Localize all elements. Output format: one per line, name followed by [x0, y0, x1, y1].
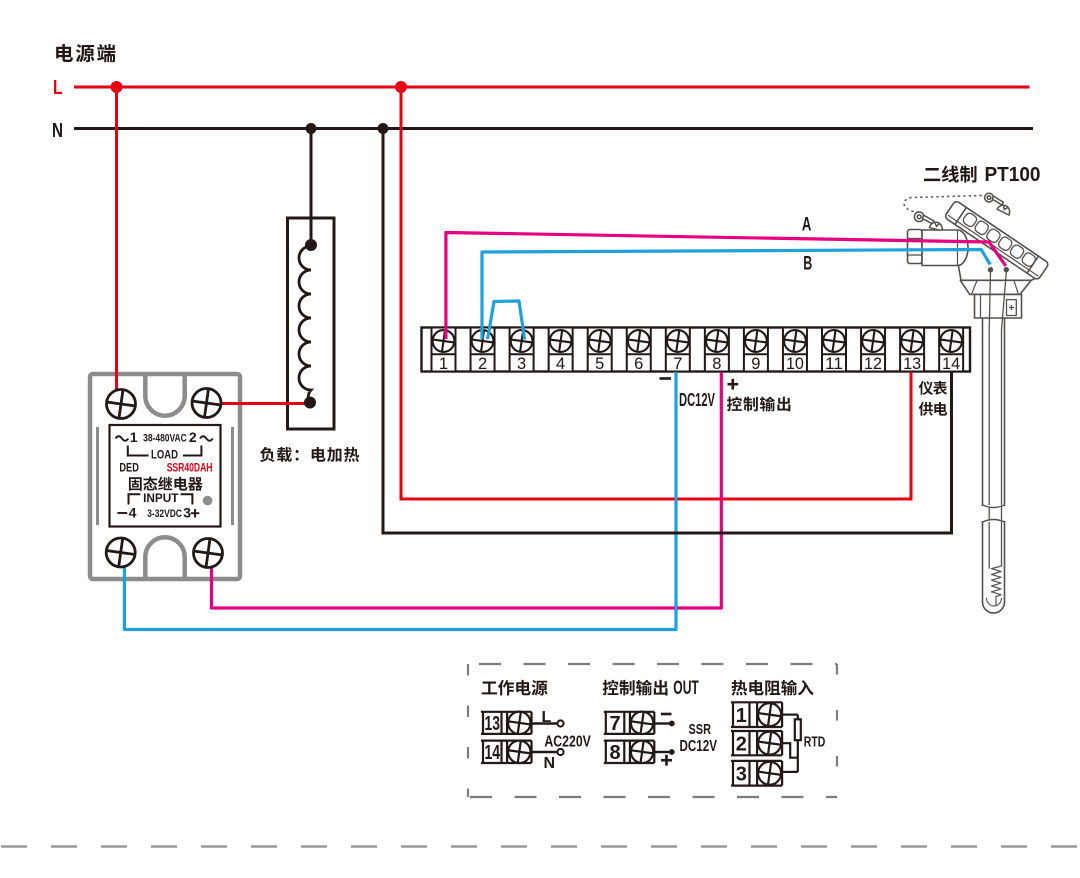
svg-text:38-480VAC: 38-480VAC — [143, 433, 187, 445]
svg-text:2: 2 — [189, 429, 197, 445]
svg-text:12: 12 — [864, 355, 882, 373]
svg-text:3: 3 — [517, 355, 526, 373]
svg-text:3: 3 — [183, 504, 191, 520]
svg-text:8: 8 — [609, 742, 620, 764]
svg-text:14: 14 — [942, 355, 960, 373]
svg-text:L: L — [542, 709, 552, 726]
svg-text:DC12V: DC12V — [680, 738, 718, 755]
svg-text:1: 1 — [439, 355, 448, 373]
svg-text:14: 14 — [485, 742, 501, 764]
svg-text:3: 3 — [736, 763, 747, 785]
svg-text:DED: DED — [119, 460, 139, 474]
svg-text:RTD: RTD — [804, 733, 826, 750]
svg-text:DC12V: DC12V — [679, 390, 715, 410]
svg-text:OUT: OUT — [673, 678, 699, 699]
svg-text:9: 9 — [751, 355, 760, 373]
svg-text:2: 2 — [478, 355, 487, 373]
svg-text:8: 8 — [712, 355, 721, 373]
svg-text:6: 6 — [634, 355, 643, 373]
svg-text:13: 13 — [903, 355, 921, 373]
svg-text:B: B — [803, 254, 812, 275]
svg-text:2: 2 — [736, 733, 747, 755]
svg-text:PT100: PT100 — [985, 164, 1041, 186]
svg-text:5: 5 — [595, 355, 604, 373]
svg-text:7: 7 — [673, 355, 682, 373]
svg-text:7: 7 — [609, 713, 620, 735]
svg-text:SSR: SSR — [689, 721, 712, 738]
svg-text:INPUT: INPUT — [143, 491, 179, 505]
svg-text:1: 1 — [130, 429, 138, 445]
svg-text:11: 11 — [825, 355, 843, 373]
svg-text:3-32VDC: 3-32VDC — [147, 508, 182, 520]
svg-text:N: N — [52, 120, 63, 142]
svg-text:1: 1 — [736, 705, 747, 727]
svg-text:SSR40DAH: SSR40DAH — [167, 460, 213, 474]
svg-text:AC220V: AC220V — [544, 733, 591, 750]
svg-text:10: 10 — [786, 355, 804, 373]
svg-text:4: 4 — [556, 355, 565, 373]
svg-text:L: L — [53, 77, 63, 99]
svg-text:A: A — [802, 215, 812, 236]
svg-text:13: 13 — [485, 713, 501, 735]
svg-text:4: 4 — [129, 504, 137, 520]
svg-text:N: N — [544, 755, 556, 772]
